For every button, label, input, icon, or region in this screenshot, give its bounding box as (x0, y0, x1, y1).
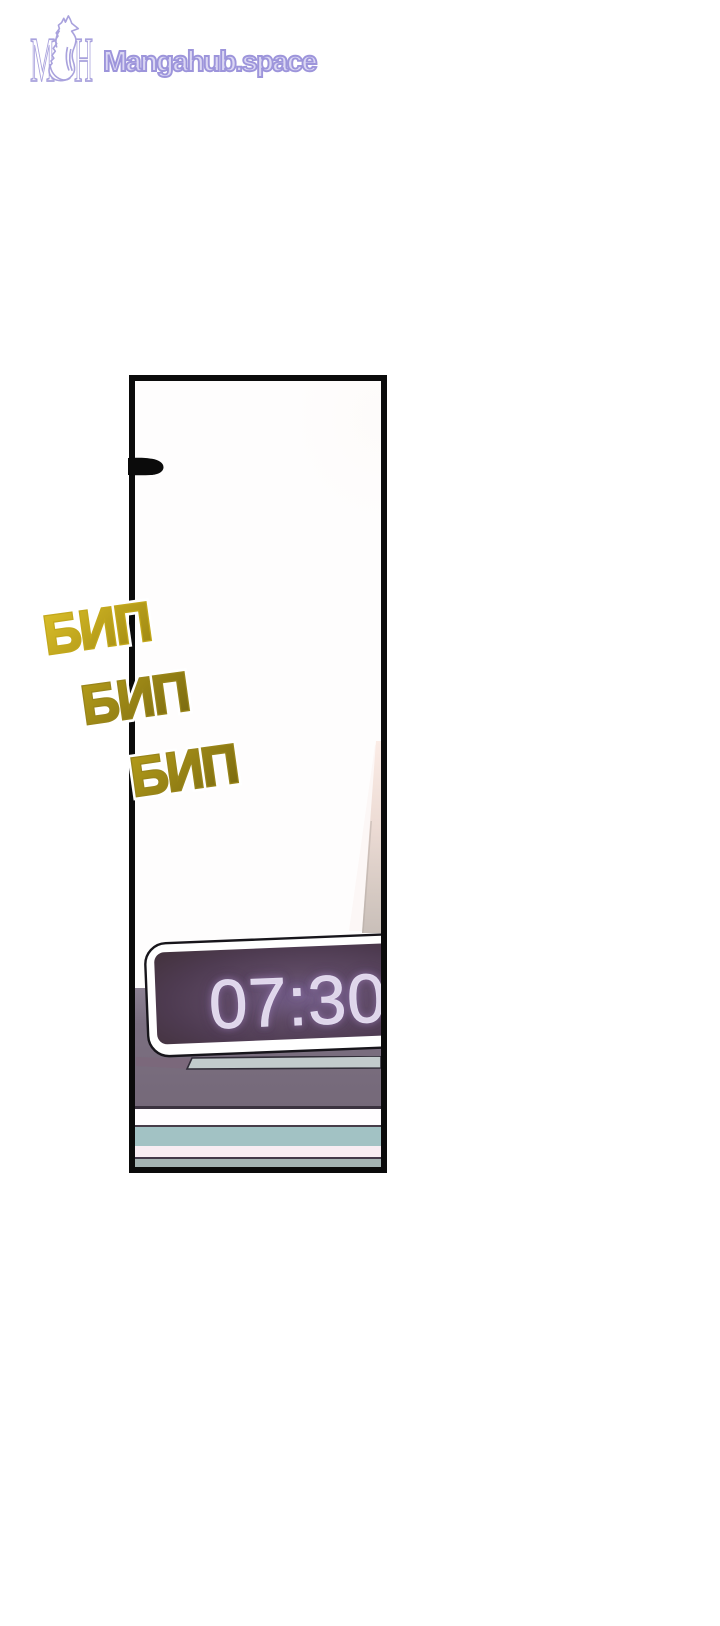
svg-text:M: M (30, 24, 55, 95)
svg-text:H: H (74, 24, 93, 95)
svg-text:07:30: 07:30 (207, 959, 381, 1043)
